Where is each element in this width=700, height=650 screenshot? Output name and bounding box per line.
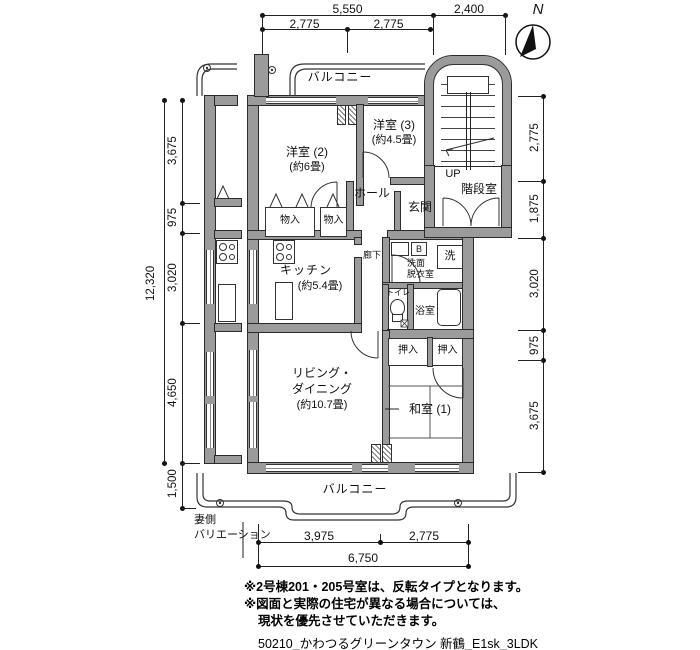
room-label-balcony-top: バルコニー: [305, 71, 375, 85]
dim-tick: [468, 524, 469, 566]
dim-tick: [182, 233, 200, 234]
room-label-oshiire-b: 押入: [432, 345, 463, 357]
window: [362, 464, 388, 472]
wall-segment: [463, 237, 473, 463]
dim-left-seg: 1,500: [166, 461, 180, 507]
dim-tick: [518, 472, 543, 473]
dim-line: [258, 566, 468, 567]
caption: 50210_かわつるグリーンタウン 新鶴_E1sk_3LDK: [258, 633, 538, 650]
dim-right-seg: 1,875: [528, 182, 542, 236]
dim-tick: [505, 15, 506, 55]
window: [415, 464, 459, 472]
window: [206, 250, 214, 304]
dim-tick: [182, 323, 200, 324]
gable-note-1: 妻側: [194, 514, 254, 527]
dim-tick: [182, 508, 196, 509]
room-label-living-2: ダイニング: [277, 383, 367, 397]
room-label-oshiire-a: 押入: [388, 345, 428, 357]
room-size-bed3: (約4.5畳): [352, 134, 436, 147]
room-label-bed2: 洋室 (2): [267, 146, 347, 160]
room-label-hall: ホール: [348, 187, 396, 201]
room-label-bath: 浴室: [411, 306, 439, 318]
dim-top-stair: 2,400: [433, 2, 505, 16]
room-size-kitchen: (約5.4畳): [290, 280, 350, 293]
wall-segment: [215, 96, 237, 105]
dim-line: [164, 100, 165, 463]
dim-left-seg: 3,675: [166, 124, 180, 178]
balcony-divider-wall: [255, 55, 268, 96]
window: [249, 250, 257, 304]
window: [206, 404, 214, 448]
dim-dot: [180, 98, 185, 103]
bathtub-icon: [437, 289, 461, 326]
wall-segment: [425, 228, 511, 237]
room-label-stairwell: 階段室: [446, 183, 512, 197]
boiler-label: B: [411, 244, 427, 254]
dim-bottom-total: 6,750: [258, 551, 468, 565]
window: [206, 352, 214, 396]
dim-line: [182, 100, 183, 508]
dim-line: [543, 96, 544, 472]
fix-window: [382, 444, 392, 463]
fix-window: [371, 444, 381, 463]
dim-tick: [262, 15, 263, 55]
room-label-kitchen: キッチン: [266, 264, 346, 278]
stair-up-label: UP: [438, 168, 468, 181]
stair-rail: [466, 92, 467, 170]
toilet-tank: [392, 314, 403, 322]
wall-segment: [383, 238, 389, 285]
dim-top-half-b: 2,775: [347, 17, 430, 31]
wall-segment: [391, 178, 425, 184]
dim-right-seg: 975: [528, 331, 542, 359]
window: [368, 97, 418, 104]
room-size-bed2: (約6畳): [271, 161, 343, 174]
north-label: N: [524, 1, 552, 18]
wall-segment: [355, 258, 361, 330]
wall-segment: [355, 238, 361, 244]
dim-tick: [347, 29, 348, 53]
wall-segment: [502, 166, 511, 237]
dim-tick: [182, 463, 200, 464]
stairs: [441, 84, 495, 170]
dim-left-seg: 4,650: [166, 366, 180, 420]
window: [266, 464, 352, 472]
shoe-cabinet: [391, 242, 409, 256]
room-label-closet-a: 物入: [265, 215, 315, 227]
room-label-entrance: 玄関: [399, 201, 441, 215]
window: [249, 350, 257, 396]
stair-rail: [470, 92, 471, 170]
dim-tick: [182, 203, 200, 204]
wall-segment: [388, 330, 473, 338]
dim-dot: [162, 98, 167, 103]
room-label-balcony-bottom: バルコニー: [317, 483, 393, 497]
dim-right-seg: 3,020: [528, 257, 542, 311]
room-label-washroom-2: 脱衣室: [407, 269, 453, 279]
dim-top-half-a: 2,775: [262, 17, 347, 31]
kitchen-counter: [218, 284, 236, 322]
wall-segment: [215, 199, 241, 206]
dim-top-total: 5,550: [262, 2, 433, 16]
dim-left-seg: 3,020: [166, 251, 180, 305]
room-label-washroom-1: 洗面: [407, 258, 449, 268]
room-label-bed3: 洋室 (3): [354, 119, 434, 133]
wall-segment: [215, 324, 241, 331]
dim-left-total: 12,320: [144, 248, 158, 318]
window: [249, 402, 257, 448]
room-label-corridor: 廊下: [360, 250, 384, 260]
dim-bottom-seg: 3,975: [258, 529, 380, 543]
dim-right-seg: 2,775: [528, 110, 542, 166]
wall-segment: [215, 456, 241, 463]
wall-segment: [215, 231, 241, 238]
window: [266, 97, 336, 104]
room-label-washitsu: 和室 (1): [399, 403, 461, 417]
dim-tick: [518, 238, 543, 239]
wall-segment: [248, 324, 361, 332]
dim-right-seg: 3,675: [528, 389, 542, 443]
room-size-living: (約10.7畳): [280, 399, 364, 412]
dim-left-seg: 975: [166, 203, 180, 231]
room-label-toilet: トイレ: [384, 288, 412, 297]
fix-window: [337, 105, 346, 125]
room-label-closet-b: 物入: [320, 215, 347, 227]
dim-tick: [518, 96, 543, 97]
floorplan-page: 5,550 2,400 2,775 2,775 N 12,320 3,675 9…: [0, 0, 700, 650]
room-label-living-1: リビング・: [282, 367, 362, 381]
stove-icon: [216, 240, 238, 264]
note-line-3: 現状を優先させていただきます。: [258, 610, 444, 629]
stair-landing: [447, 76, 489, 94]
dim-tick: [518, 360, 543, 361]
stove-icon: [273, 240, 295, 264]
dim-bottom-seg: 2,775: [380, 529, 468, 543]
compass-icon: [507, 16, 567, 76]
dim-tick: [433, 15, 434, 55]
